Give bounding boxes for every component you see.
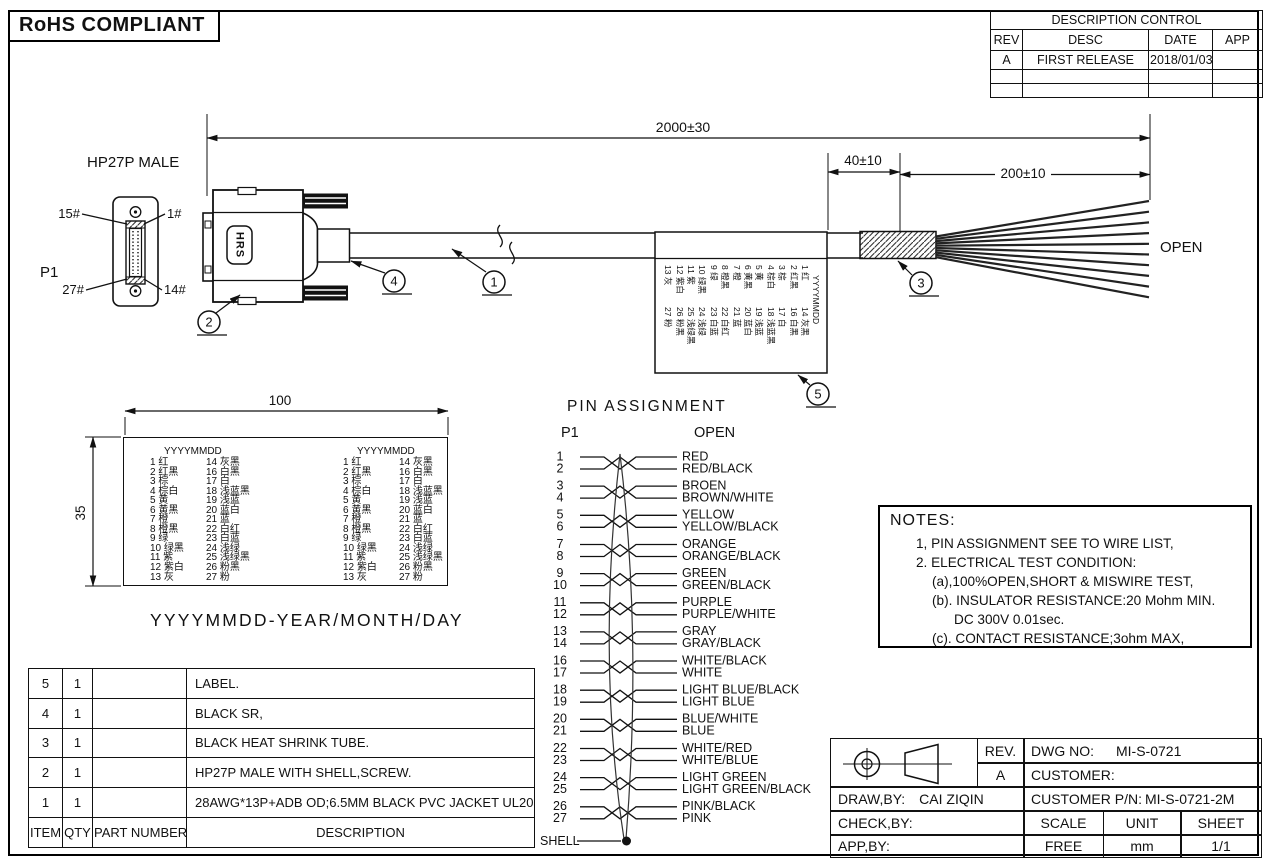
bom-cell: 1: [63, 698, 93, 728]
label-wire-row: 2 红黑16 白黑: [787, 265, 798, 367]
bom-cell: BLACK HEAT SHRINK TUBE.: [187, 728, 535, 758]
desc-control-cell: [991, 84, 1023, 98]
label-wire-row: 12 紫白26 粉黑: [673, 265, 684, 367]
label-wire-row: 6 黄黑20 蓝白: [742, 265, 753, 367]
sheet-value-cell: 1/1: [1180, 834, 1262, 858]
bom-row: 1128AWG*13P+ADB OD;6.5MM BLACK PVC JACKE…: [29, 788, 535, 818]
bom-row: 41BLACK SR,: [29, 698, 535, 728]
rev-value-cell: A: [977, 762, 1025, 788]
bom-table: 51LABEL.41BLACK SR,31BLACK HEAT SHRINK T…: [28, 668, 535, 848]
bom-cell: [93, 788, 187, 818]
bom-cell: 3: [29, 728, 63, 758]
label-wire-row: 13 灰27 粉: [343, 573, 493, 583]
drawing-sheet: 15# 1# 27# 14# HP27P MALE P1: [0, 0, 1269, 866]
desc-control-cell: A: [991, 51, 1023, 70]
notes-box: NOTES: 1, PIN ASSIGNMENT SEE TO WIRE LIS…: [878, 505, 1252, 648]
label-wire-row: 3 棕17 白: [776, 265, 787, 367]
desc-control-title: DESCRIPTION CONTROL: [991, 11, 1263, 30]
label-wire-row: 7 橙21 蓝: [730, 265, 741, 367]
note-line: 2. ELECTRICAL TEST CONDITION:: [880, 553, 1250, 572]
label-wire-row: 13 灰27 粉: [150, 573, 300, 583]
unit-value-cell: mm: [1103, 834, 1182, 858]
desc-control-header: APP: [1213, 30, 1263, 51]
desc-control-cell: [991, 70, 1023, 84]
bom-cell: 1: [63, 758, 93, 788]
note-line: (c). CONTACT RESISTANCE;3ohm MAX,: [880, 629, 1250, 648]
bom-cell: 1: [29, 788, 63, 818]
label-wire-row: 8 橙黑22 白红: [719, 265, 730, 367]
draw-by-value: CAI ZIQIN: [919, 791, 984, 807]
bom-cell: 2: [29, 758, 63, 788]
bom-cell: [93, 669, 187, 699]
scale-value-cell: FREE: [1023, 834, 1104, 858]
projection-cell: [830, 738, 978, 788]
sheet-label-cell: SHEET: [1180, 810, 1262, 836]
customer-pn-cell: CUSTOMER P/N: MI-S-0721-2M: [1023, 786, 1262, 812]
html-layer: RoHS COMPLIANT DESCRIPTION CONTROLREVDES…: [0, 0, 1269, 866]
dwg-no-value: MI-S-0721: [1116, 743, 1181, 759]
bom-cell: 1: [63, 669, 93, 699]
bom-header: PART NUMBER: [93, 817, 187, 847]
bom-row: 21HP27P MALE WITH SHELL,SCREW.: [29, 758, 535, 788]
label-caption: YYYYMMDD-YEAR/MONTH/DAY: [150, 610, 464, 631]
desc-control-cell: [1023, 84, 1149, 98]
bom-cell: 4: [29, 698, 63, 728]
bom-cell: 5: [29, 669, 63, 699]
dwg-no-cell: DWG NO: MI-S-0721: [1023, 738, 1262, 764]
label-date-code: YYYYMMDD: [343, 446, 493, 457]
draw-by-cell: DRAW,BY: CAI ZIQIN: [830, 786, 1025, 812]
desc-control-header: DATE: [1149, 30, 1213, 51]
label-wire-row: 5 黄19 浅蓝: [753, 265, 764, 367]
label-wire-row: 4 棕白18 浅蓝黑: [764, 265, 775, 367]
bom-cell: [93, 698, 187, 728]
label-date-code: YYYYMMDD: [150, 446, 300, 457]
bom-cell: LABEL.: [187, 669, 535, 699]
customer-pn-label: CUSTOMER P/N:: [1031, 791, 1142, 807]
label-wire-row: 1 红14 灰黑: [799, 265, 810, 367]
label-wire-list-left: YYYYMMDD1 红14 灰黑2 红黑16 白黑3 棕17 白4 棕白18 浅…: [150, 446, 300, 582]
desc-control-cell: FIRST RELEASE: [1023, 51, 1149, 70]
check-by-cell: CHECK,BY:: [830, 810, 1025, 836]
bom-cell: [93, 728, 187, 758]
desc-control-cell: [1149, 70, 1213, 84]
customer-cell: CUSTOMER:: [1023, 762, 1262, 788]
bom-header: QTY: [63, 817, 93, 847]
desc-control-header: DESC: [1023, 30, 1149, 51]
desc-control-cell: [1213, 51, 1263, 70]
customer-pn-value: MI-S-0721-2M: [1145, 791, 1234, 807]
unit-label-cell: UNIT: [1103, 810, 1182, 836]
label-wire-row: 13 灰27 粉: [662, 265, 673, 367]
note-line: 1, PIN ASSIGNMENT SEE TO WIRE LIST,: [880, 534, 1250, 553]
on-cable-label-text: YYYYMMDD1 红14 灰黑2 红黑16 白黑3 棕17 白4 棕白18 浅…: [658, 262, 824, 370]
app-by-cell: APP,BY:: [830, 834, 1025, 858]
bom-header: DESCRIPTION: [187, 817, 535, 847]
scale-label-cell: SCALE: [1023, 810, 1104, 836]
note-line: (a),100%OPEN,SHORT & MISWIRE TEST,: [880, 572, 1250, 591]
bom-cell: BLACK SR,: [187, 698, 535, 728]
description-control-table: DESCRIPTION CONTROLREVDESCDATEAPPAFIRST …: [990, 10, 1263, 98]
desc-control-cell: [1149, 84, 1213, 98]
desc-control-cell: [1213, 84, 1263, 98]
desc-control-cell: [1023, 70, 1149, 84]
desc-control-cell: 2018/01/03: [1149, 51, 1213, 70]
bom-cell: 28AWG*13P+ADB OD;6.5MM BLACK PVC JACKET …: [187, 788, 535, 818]
bom-cell: 1: [63, 788, 93, 818]
note-line: DC 300V 0.01sec.: [880, 610, 1250, 629]
draw-by-label: DRAW,BY:: [838, 791, 905, 807]
label-wire-list-right: YYYYMMDD1 红14 灰黑2 红黑16 白黑3 棕17 白4 棕白18 浅…: [343, 446, 493, 582]
desc-control-header: REV: [991, 30, 1023, 51]
desc-control-cell: [1213, 70, 1263, 84]
notes-title: NOTES:: [890, 512, 1250, 530]
rev-label-cell: REV.: [977, 738, 1025, 764]
label-wire-row: 11 紫25 浅绿黑: [685, 265, 696, 367]
label-wire-row: 9 绿23 白蓝: [707, 265, 718, 367]
bom-cell: [93, 758, 187, 788]
bom-row: 51LABEL.: [29, 669, 535, 699]
note-line: (b). INSULATOR RESISTANCE:20 Mohm MIN.: [880, 591, 1250, 610]
rohs-banner: RoHS COMPLIANT: [8, 10, 220, 42]
bom-cell: 1: [63, 728, 93, 758]
label-wire-row: 10 绿黑24 浅绿: [696, 265, 707, 367]
bom-cell: HP27P MALE WITH SHELL,SCREW.: [187, 758, 535, 788]
bom-header: ITEM: [29, 817, 63, 847]
label-date-code: YYYYMMDD: [810, 265, 821, 367]
dwg-no-label: DWG NO:: [1031, 743, 1094, 759]
bom-row: 31BLACK HEAT SHRINK TUBE.: [29, 728, 535, 758]
